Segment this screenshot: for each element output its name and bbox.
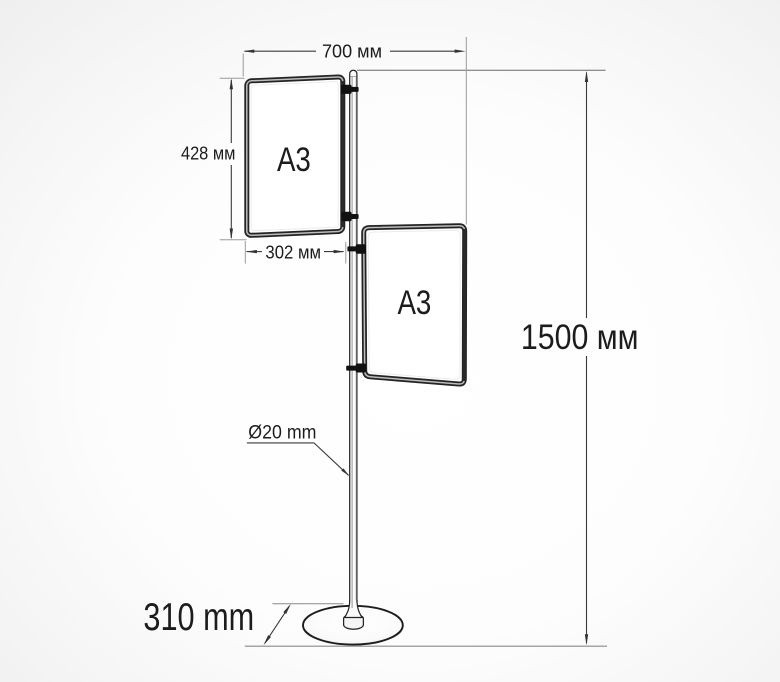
svg-text:A3: A3: [277, 141, 311, 179]
svg-text:A3: A3: [397, 284, 431, 322]
svg-text:302 мм: 302 мм: [265, 243, 321, 263]
svg-text:700 мм: 700 мм: [322, 41, 382, 61]
svg-text:428 мм: 428 мм: [181, 144, 236, 164]
svg-text:1500 мм: 1500 мм: [521, 318, 639, 357]
svg-text:310 mm: 310 mm: [143, 596, 254, 639]
svg-text:Ø20 mm: Ø20 mm: [248, 422, 316, 444]
